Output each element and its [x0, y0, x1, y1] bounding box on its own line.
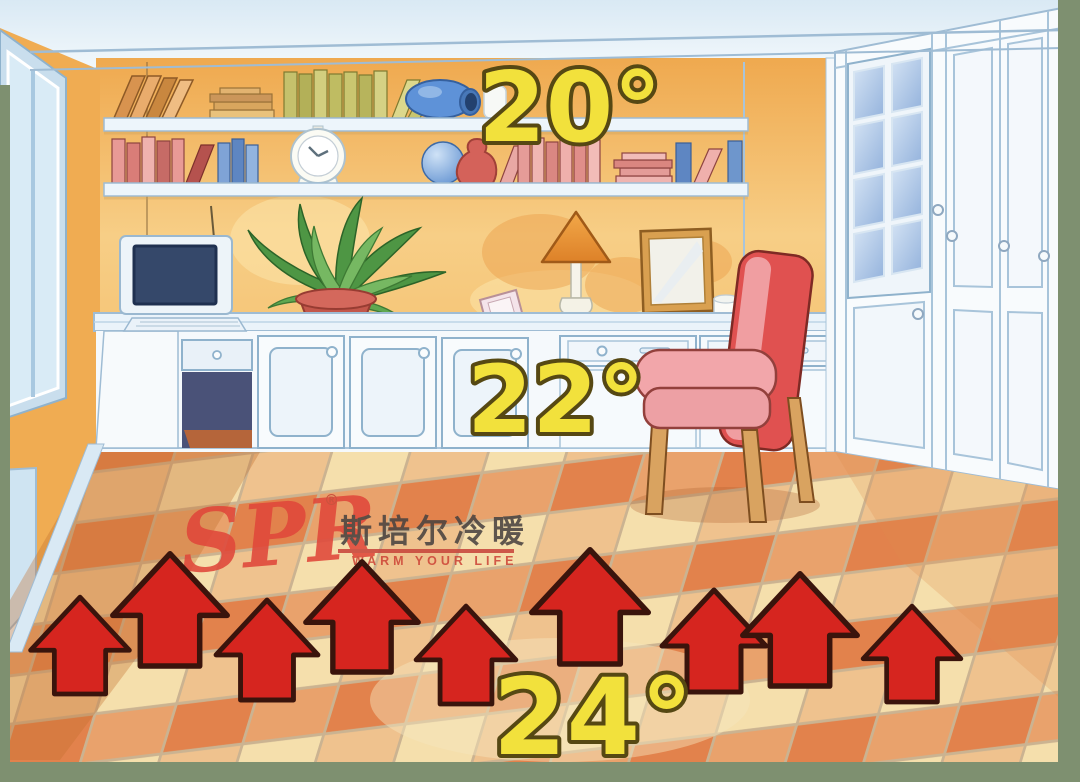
wardrobe-door — [954, 48, 992, 460]
desk-side-panel — [96, 331, 178, 448]
shelf-board-lower — [104, 183, 748, 196]
wardrobe-door — [1008, 38, 1042, 470]
keyboard — [124, 318, 246, 331]
chair-seat-front — [644, 388, 770, 428]
registered-mark: ® — [324, 491, 339, 509]
temp-label-middle: 22° — [467, 346, 645, 455]
room-illustration: SPR ® 斯培尔冷暖 WARM YOUR LIFE 20° 22° 24° — [0, 0, 1080, 782]
illustration-canvas: SPR ® 斯培尔冷暖 WARM YOUR LIFE 20° 22° 24° — [0, 0, 1080, 782]
temp-label-floor: 24° — [493, 656, 694, 779]
cabinet-door — [258, 336, 344, 448]
brand-slogan: WARM YOUR LIFE — [352, 554, 518, 568]
mirror — [641, 229, 714, 313]
right-wardrobe — [826, 8, 1062, 490]
crt-monitor — [120, 236, 232, 314]
cabinet-door — [350, 337, 436, 448]
temp-label-ceiling: 20° — [478, 51, 662, 164]
glass-door — [848, 49, 930, 448]
brand-chinese-name: 斯培尔冷暖 — [340, 512, 530, 550]
glass-door-lower-panel — [854, 302, 924, 448]
brand-rule — [338, 549, 514, 553]
